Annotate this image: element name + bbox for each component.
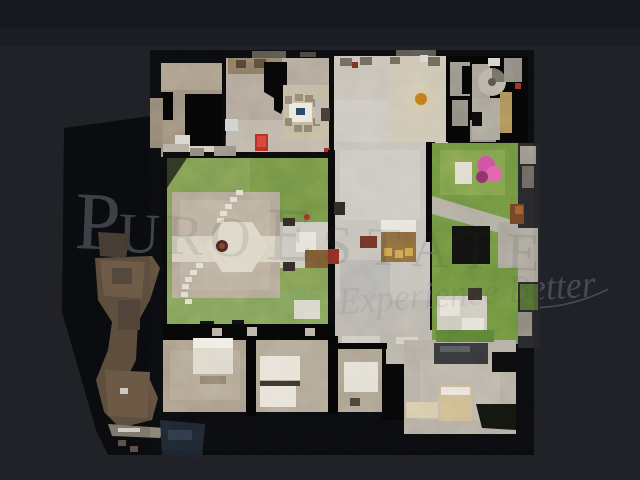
svg-text:P: P (73, 175, 122, 268)
svg-text:URO: URO (117, 202, 258, 270)
svg-text:E: E (265, 192, 315, 278)
